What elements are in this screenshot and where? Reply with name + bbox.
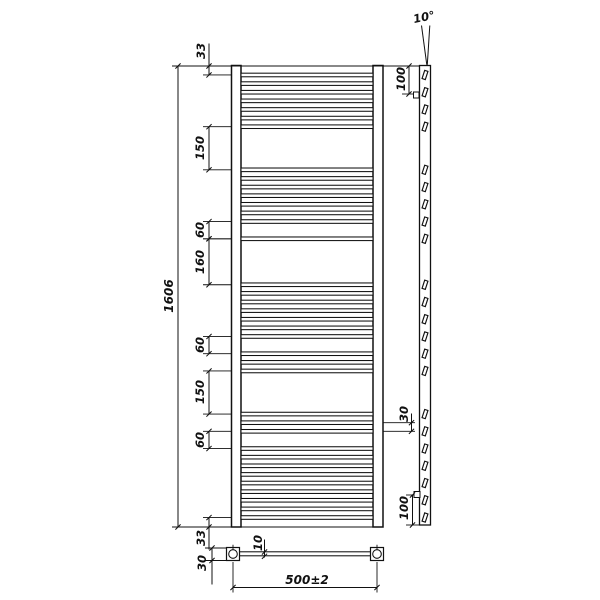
rung	[241, 412, 373, 416]
rung	[241, 352, 373, 356]
dim-label-gap-60-lower: 60	[193, 432, 207, 448]
dim-label-end-fitting: 30	[195, 555, 209, 571]
rung	[241, 516, 373, 520]
rung	[241, 292, 373, 296]
rung	[241, 507, 373, 511]
dim-label-overall-height: 1606	[162, 279, 176, 312]
fitting-circle	[373, 550, 382, 559]
rung	[241, 283, 373, 287]
rung	[241, 73, 373, 77]
dim-label-gap-150-lower: 150	[193, 380, 207, 404]
rung	[241, 211, 373, 215]
bottom-view-tube	[240, 552, 371, 556]
fitting-circle	[229, 550, 238, 559]
rung	[241, 90, 373, 94]
rung	[241, 498, 373, 502]
rung	[241, 202, 373, 206]
rung	[241, 421, 373, 425]
angle-wedge-line	[422, 26, 427, 65]
rung	[241, 455, 373, 459]
rung	[241, 185, 373, 189]
technical-drawing-canvas: 1606 33 150 60 160 60 150 60 33 30 10° 1…	[0, 0, 600, 600]
rung	[241, 464, 373, 468]
dim-label-gap-160: 160	[193, 250, 207, 274]
dim-label-tube-offset: 10	[251, 535, 265, 551]
dim-label-gap-60-upper: 60	[193, 222, 207, 238]
rung	[241, 490, 373, 494]
dim-label-bottom-margin: 33	[194, 530, 208, 546]
rung	[241, 237, 373, 241]
rung	[241, 326, 373, 330]
rung	[241, 335, 373, 339]
front-view-left-rail	[232, 66, 242, 528]
dim-label-rung-pitch: 30	[397, 406, 411, 422]
angle-wedge-line	[427, 26, 430, 65]
dim-label-gap-150-upper: 150	[193, 136, 207, 160]
rung	[241, 220, 373, 224]
rung	[241, 300, 373, 304]
dim-label-top-mount-offset: 100	[394, 67, 408, 91]
rung	[241, 369, 373, 373]
front-view-right-rail	[373, 66, 383, 528]
mounting-tab-top	[414, 92, 420, 98]
rung	[241, 430, 373, 434]
rung	[241, 309, 373, 313]
dim-label-bottom-mount-offset: 100	[397, 496, 411, 520]
side-view-rail	[420, 66, 431, 526]
rung	[241, 125, 373, 129]
drawing-linework	[0, 0, 600, 600]
rung	[241, 317, 373, 321]
rung	[241, 108, 373, 112]
rung	[241, 116, 373, 120]
rung	[241, 481, 373, 485]
dim-label-top-margin: 33	[194, 43, 208, 59]
rung	[241, 361, 373, 365]
rung	[241, 447, 373, 451]
rung	[241, 177, 373, 181]
rung	[241, 168, 373, 172]
dim-label-connection-width: 500±2	[285, 573, 328, 587]
rung	[241, 99, 373, 103]
rung	[241, 82, 373, 86]
dim-label-gap-60-middle: 60	[193, 337, 207, 353]
rung	[241, 473, 373, 477]
rung	[241, 194, 373, 198]
